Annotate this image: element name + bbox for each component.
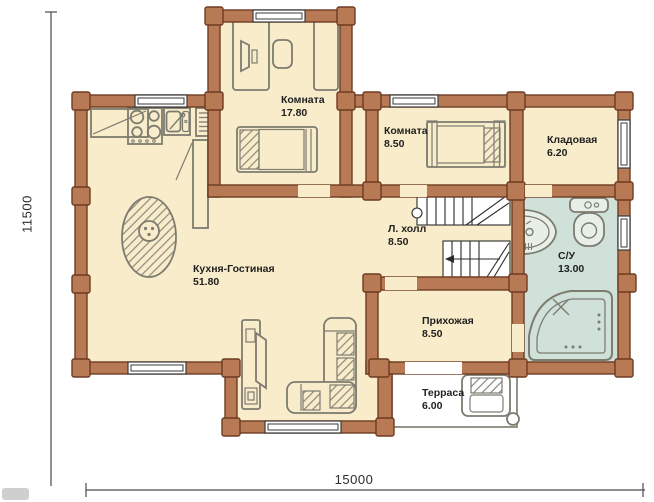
window	[253, 10, 305, 22]
armchair-icon	[462, 375, 510, 416]
door-opening	[512, 324, 524, 352]
room-label-bedroom-2: Комната8.50	[384, 125, 428, 150]
door-opening	[400, 185, 427, 197]
terrace-post-icon	[507, 413, 519, 425]
dining-table-icon	[122, 197, 176, 277]
dimension-label-height: 11500	[20, 195, 35, 233]
floor-plan: Комната17.80 Комната8.50 Кладовая6.20 Л.…	[0, 0, 654, 502]
room-label-bedroom-1: Комната17.80	[281, 94, 325, 119]
window	[265, 421, 341, 433]
window	[390, 95, 438, 107]
window	[618, 216, 630, 250]
entrance-door-opening	[405, 362, 462, 374]
room-label-hallway: Прихожая8.50	[422, 315, 474, 340]
room-label-kitchen-living: Кухня-Гостиная51.80	[193, 263, 275, 288]
tv-icon	[256, 333, 266, 388]
door-opening	[525, 185, 552, 197]
room-label-terrace: Терраса6.00	[422, 387, 464, 412]
floor-plan-drawing	[0, 0, 654, 502]
window	[135, 95, 187, 107]
window	[128, 362, 186, 374]
door-opening	[385, 277, 417, 290]
toilet-icon	[570, 198, 608, 246]
window	[618, 120, 630, 168]
room-label-stair-hall: Л. холл8.50	[388, 223, 426, 248]
room-label-storage: Кладовая6.20	[547, 134, 597, 159]
watermark	[2, 488, 29, 500]
room-label-bathroom: С/У13.00	[558, 250, 584, 275]
door-opening	[298, 185, 330, 197]
dimension-label-width: 15000	[335, 472, 374, 487]
